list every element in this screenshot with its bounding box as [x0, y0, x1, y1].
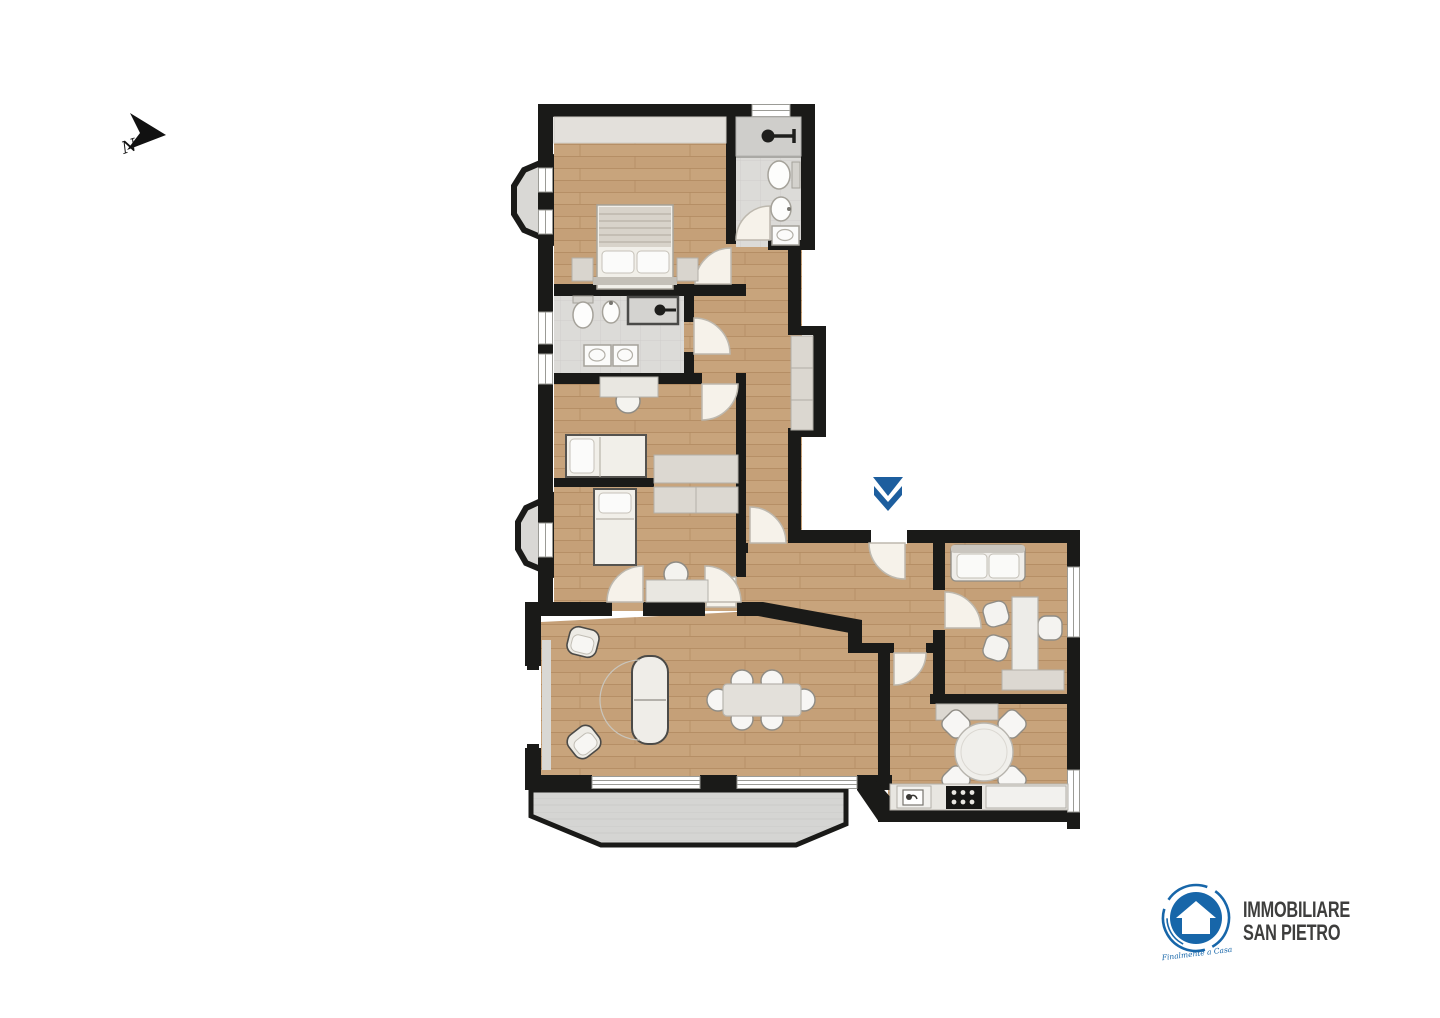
- toilet: [768, 161, 800, 189]
- window-living-2: [737, 777, 857, 789]
- entrance-arrow-icon: [873, 477, 903, 511]
- round-table: [955, 723, 1013, 781]
- radiator: [542, 640, 551, 770]
- double-bed: [593, 205, 677, 289]
- dining-table: [723, 684, 801, 716]
- window-kitchen: [1068, 770, 1080, 812]
- room-hallway: [791, 336, 813, 430]
- french-door-living: [525, 664, 541, 750]
- logo-name: IMMOBILIARE SAN PIETRO: [1243, 898, 1350, 945]
- loveseat: [951, 545, 1025, 581]
- logo-badge: Finalmente a Casa: [1156, 881, 1238, 967]
- window-top-bathroom: [752, 105, 790, 117]
- entrance-opening: [871, 529, 907, 544]
- washbasin: [772, 226, 799, 245]
- window-left-5: [539, 523, 553, 557]
- wardrobe: [654, 455, 738, 483]
- window-left-3: [539, 312, 553, 344]
- single-bed: [594, 489, 636, 565]
- window-study: [1068, 567, 1080, 637]
- study-desk: [1012, 597, 1038, 673]
- logo-name-line1: IMMOBILIARE: [1243, 898, 1350, 921]
- window-living-1: [592, 777, 700, 789]
- desk: [600, 377, 658, 397]
- toilet: [573, 296, 593, 328]
- kitchen-counter: [890, 784, 1068, 810]
- nightstand-left: [572, 258, 593, 281]
- logo-name-line2: SAN PIETRO: [1243, 921, 1350, 944]
- bidet: [603, 301, 620, 323]
- desk: [646, 580, 708, 602]
- floor-plan-svg: N: [0, 0, 1440, 1018]
- window-left-2: [539, 210, 553, 234]
- window-left-4: [539, 354, 553, 384]
- window-left-1: [539, 168, 553, 192]
- sink-unit: [897, 786, 931, 808]
- washbasin-double: [584, 345, 638, 366]
- shower-box: [628, 297, 678, 324]
- page: N Finalmente a Casa IMMOBILIARE SAN PIET…: [0, 0, 1440, 1018]
- built-in-wardrobe: [791, 336, 813, 430]
- single-bed: [566, 435, 646, 477]
- nightstand-right: [677, 258, 698, 281]
- north-arrow: N: [118, 113, 166, 159]
- wardrobe-band: [554, 117, 726, 143]
- bidet: [771, 197, 791, 221]
- cooktop: [946, 786, 982, 809]
- agency-logo: Finalmente a Casa IMMOBILIARE SAN PIETRO: [1156, 881, 1388, 967]
- study-closet: [1002, 670, 1064, 690]
- counter-right: [986, 786, 1066, 808]
- terrace-floor: [531, 790, 846, 845]
